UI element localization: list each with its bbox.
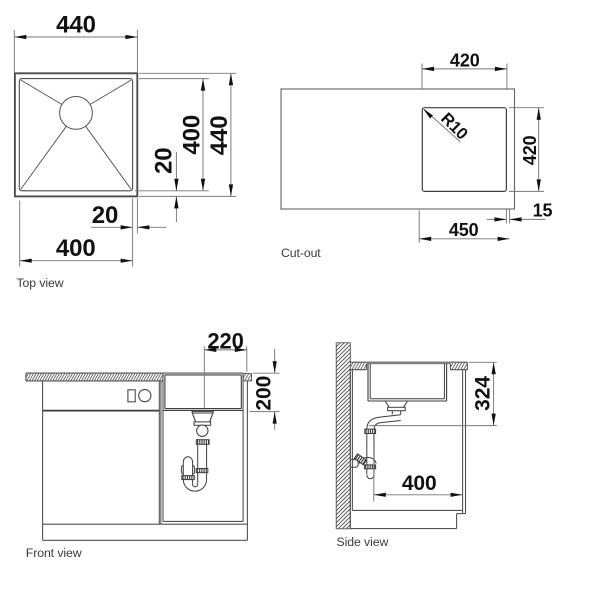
- svg-text:220: 220: [207, 328, 243, 353]
- svg-text:Front view: Front view: [26, 546, 82, 560]
- svg-text:20: 20: [150, 148, 177, 175]
- svg-text:324: 324: [472, 376, 495, 411]
- svg-text:420: 420: [520, 135, 540, 165]
- svg-text:400: 400: [402, 472, 437, 495]
- svg-text:400: 400: [56, 235, 96, 262]
- svg-text:15: 15: [533, 201, 553, 221]
- svg-text:200: 200: [252, 376, 275, 411]
- svg-text:450: 450: [449, 220, 479, 240]
- svg-text:Top view: Top view: [17, 276, 64, 290]
- svg-text:Side view: Side view: [337, 535, 389, 549]
- svg-text:420: 420: [450, 50, 480, 70]
- svg-text:440: 440: [206, 116, 233, 156]
- svg-text:20: 20: [92, 202, 119, 229]
- svg-text:440: 440: [56, 12, 96, 39]
- svg-text:Cut-out: Cut-out: [281, 246, 321, 260]
- svg-text:400: 400: [178, 115, 205, 155]
